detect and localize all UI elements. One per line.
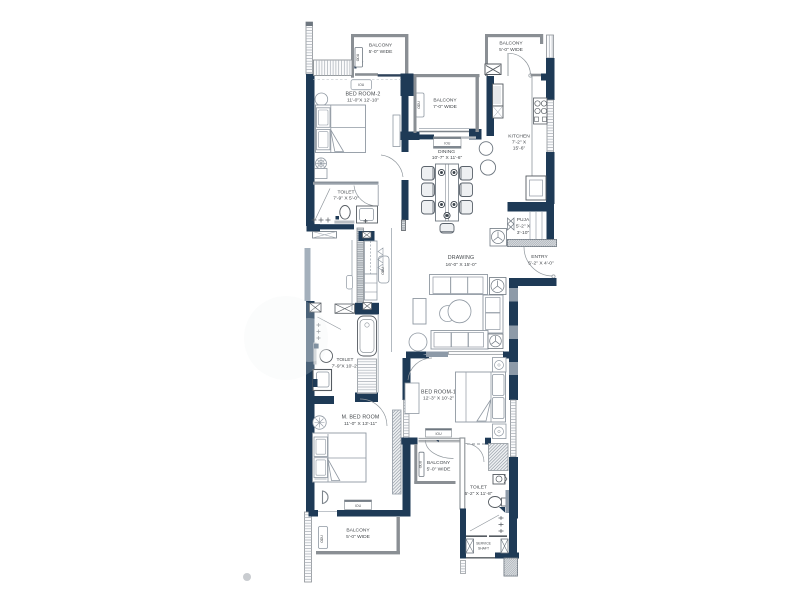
- svg-text:ODU: ODU: [356, 53, 360, 61]
- svg-text:TOILET: TOILET: [336, 357, 353, 363]
- svg-text:11'-0" X 13'-11": 11'-0" X 13'-11": [344, 421, 377, 427]
- svg-text:5'-0" WIDE: 5'-0" WIDE: [369, 49, 394, 55]
- svg-text:BED ROOM-1: BED ROOM-1: [421, 390, 456, 396]
- svg-text:ODU: ODU: [419, 460, 423, 468]
- svg-text:BALCONY: BALCONY: [427, 460, 451, 466]
- svg-text:10'-7" X 11'-6": 10'-7" X 11'-6": [432, 155, 463, 161]
- svg-text:7'-9" X 5'-0": 7'-9" X 5'-0": [333, 195, 359, 201]
- svg-text:DINING: DINING: [438, 149, 455, 155]
- svg-text:ODU: ODU: [381, 267, 385, 275]
- svg-text:IOU: IOU: [358, 83, 365, 87]
- svg-text:ODU: ODU: [320, 535, 324, 543]
- svg-text:IOU: IOU: [444, 142, 451, 146]
- svg-text:BED ROOM-2: BED ROOM-2: [345, 92, 380, 98]
- svg-text:5'-0" WIDE: 5'-0" WIDE: [427, 467, 452, 473]
- svg-text:TOILET: TOILET: [470, 485, 487, 491]
- svg-text:DRAWING: DRAWING: [448, 255, 474, 261]
- svg-text:5'-2" X 11'-8": 5'-2" X 11'-8": [465, 491, 493, 497]
- svg-text:PUJA: PUJA: [517, 217, 530, 223]
- svg-text:ENTRY: ENTRY: [531, 254, 548, 260]
- svg-text:SERVICE: SERVICE: [476, 542, 492, 546]
- svg-text:16'-0" X 15'-0": 16'-0" X 15'-0": [446, 262, 477, 268]
- svg-text:15'-6": 15'-6": [513, 146, 526, 152]
- svg-text:ODU: ODU: [417, 101, 421, 109]
- svg-text:5'-2" X 4'-0": 5'-2" X 4'-0": [528, 261, 554, 267]
- svg-text:3'-10": 3'-10": [517, 230, 530, 236]
- svg-text:11'-0"X 12'-10": 11'-0"X 12'-10": [347, 98, 379, 104]
- svg-text:7'-2" X: 7'-2" X: [512, 140, 527, 146]
- svg-text:7'-9"X 10'-2": 7'-9"X 10'-2": [332, 364, 359, 370]
- svg-text:5'-0" WIDE: 5'-0" WIDE: [346, 534, 371, 540]
- svg-text:BALCONY: BALCONY: [433, 98, 457, 104]
- svg-text:5'-2" X: 5'-2" X: [516, 224, 531, 230]
- svg-text:12'-3" X 10'-2": 12'-3" X 10'-2": [423, 396, 454, 402]
- svg-text:5'-0" WIDE: 5'-0" WIDE: [499, 47, 524, 53]
- svg-text:7'-0" WIDE: 7'-0" WIDE: [433, 104, 458, 110]
- svg-text:IOU: IOU: [435, 432, 442, 436]
- svg-text:BALCONY: BALCONY: [346, 528, 370, 534]
- svg-text:SHAFT: SHAFT: [478, 547, 489, 551]
- svg-text:IOU: IOU: [355, 504, 362, 508]
- svg-text:KITCHEN: KITCHEN: [508, 134, 530, 140]
- svg-text:BALCONY: BALCONY: [499, 41, 523, 47]
- svg-text:BALCONY: BALCONY: [369, 43, 393, 49]
- svg-text:TOILET: TOILET: [337, 190, 354, 196]
- svg-text:M. BED ROOM: M. BED ROOM: [342, 415, 380, 421]
